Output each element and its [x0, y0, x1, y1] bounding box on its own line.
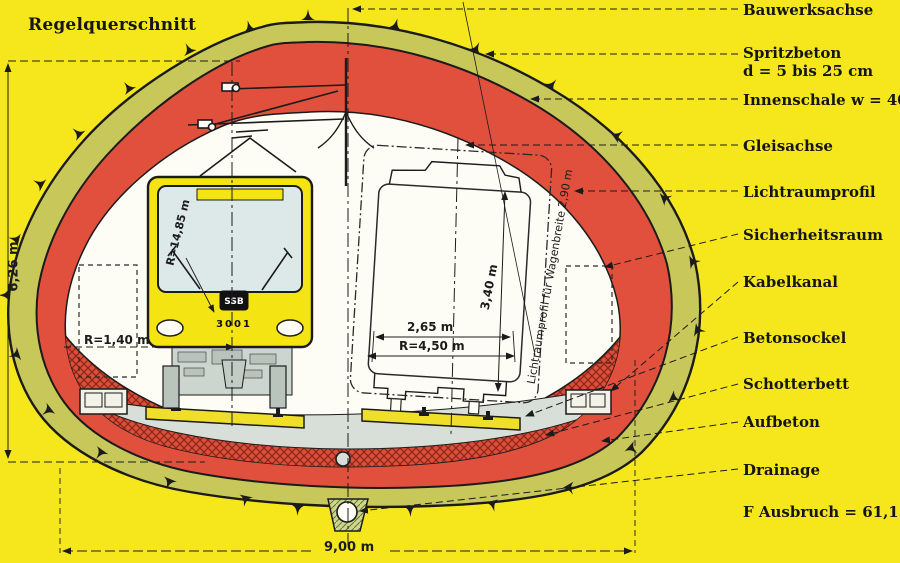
tram-coupler [222, 360, 246, 388]
tram-number: 3001 [216, 319, 252, 330]
label-schotterbett: Schotterbett [743, 375, 849, 393]
tram-wheel-left [163, 366, 179, 408]
tram-wheel-right [270, 366, 286, 408]
label-bauwerksachse: Bauwerksachse [743, 1, 873, 19]
kabelkanal-left [80, 389, 127, 414]
label-ausbruch-area: F Ausbruch = 61,15 m² [743, 503, 900, 521]
label-lichtraumprofil: Lichtraumprofil [743, 183, 876, 201]
label-kabelkanal: Kabelkanal [743, 273, 838, 291]
label-gleisachse: Gleisachse [743, 137, 833, 155]
ssb-logo-text: SSB [224, 297, 244, 307]
dim-tunnel-width: 9,00 m [324, 540, 374, 555]
page-title: Regelquerschnitt [28, 15, 196, 35]
dim-car-width: 2,65 m [407, 320, 453, 334]
label-sicherheitsraum: Sicherheitsraum [743, 226, 883, 244]
label-aufbeton: Aufbeton [743, 413, 820, 431]
label-innenschale: Innenschale w = 40 cm [743, 91, 900, 109]
tram-headlight-right [277, 320, 303, 336]
dim-floor-radius: R=1,40 m [84, 333, 150, 347]
tunnel-cross-section-diagram: SSB 3001 [0, 0, 900, 563]
dim-tunnel-height: 6,26 m [7, 237, 22, 297]
tram-destination-sign [197, 189, 283, 200]
tram-headlight-left [157, 320, 183, 336]
kabelkanal-right [566, 390, 611, 414]
label-spritzbeton-line2: d = 5 bis 25 cm [743, 62, 873, 80]
label-spritzbeton: Spritzbeton d = 5 bis 25 cm [743, 44, 873, 80]
label-drainage: Drainage [743, 461, 820, 479]
tram: SSB 3001 [148, 177, 312, 408]
dim-profile-radius: R=4,50 m [399, 339, 465, 353]
label-betonsockel: Betonsockel [743, 329, 846, 347]
label-spritzbeton-line1: Spritzbeton [743, 44, 873, 62]
